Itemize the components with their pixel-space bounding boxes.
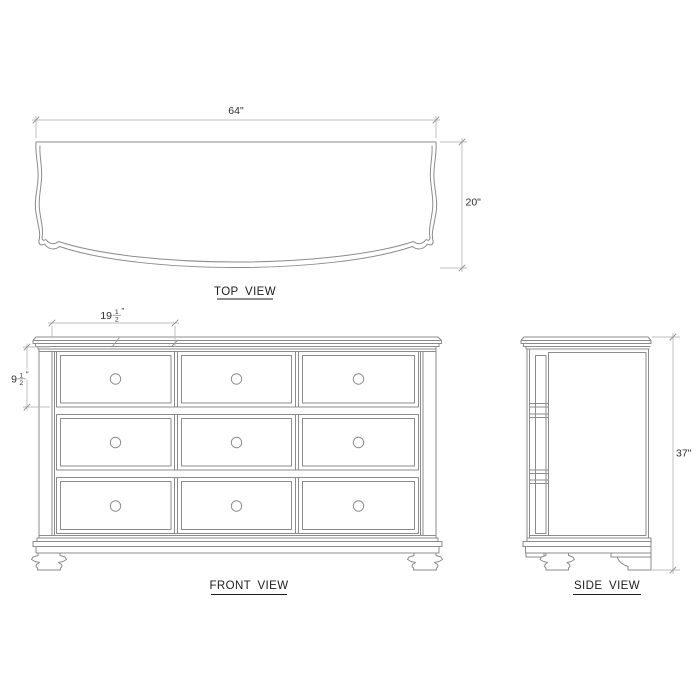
drawer-width-unit: " <box>122 307 125 316</box>
side-base-molding <box>527 538 651 542</box>
dimension-extension-lines <box>36 116 436 138</box>
drawer-width-numerator: 1 <box>115 309 119 316</box>
drawer-knob <box>110 437 120 447</box>
drawer-face <box>61 419 172 467</box>
front-left-foot <box>32 553 67 570</box>
drawer-face <box>182 419 292 467</box>
side-cornice <box>521 337 651 349</box>
side-back-foot-cap <box>611 553 651 557</box>
top-view-label: TOP VIEW <box>214 286 276 298</box>
drawer-width-whole: 19 <box>100 310 112 322</box>
front-case-frame <box>39 349 436 538</box>
drawer-height-denominator: 2 <box>19 380 23 387</box>
side-molding-return <box>526 553 544 557</box>
side-base-molding <box>526 547 652 554</box>
front-cornice <box>33 337 442 349</box>
drawer-height-unit: " <box>26 371 29 380</box>
front-view-label: FRONT VIEW <box>210 580 289 592</box>
drawer-face <box>182 482 292 530</box>
cornice-miter-tick <box>112 338 119 347</box>
side-base-molding <box>523 542 651 547</box>
drawer-knob <box>353 501 363 511</box>
dimension-tick <box>49 320 178 346</box>
front-right-foot <box>408 553 443 570</box>
front-base-molding <box>37 538 438 542</box>
drawing-sheet: 64" 20" TOP VIEW <box>0 0 700 700</box>
drawer-face <box>182 356 292 404</box>
front-view: 19 1 2 " 9 1 2 " FRONT VIEW <box>11 307 442 595</box>
side-case-frame <box>527 349 649 538</box>
side-height-dim-text: 37" <box>676 448 692 460</box>
dimension-top-depth: 20" <box>440 138 481 272</box>
side-front-foot <box>540 553 575 570</box>
dresser-technical-drawing: 64" 20" TOP VIEW <box>0 0 700 700</box>
drawer-height-whole: 9 <box>11 374 17 386</box>
drawer-face <box>303 356 415 404</box>
front-base-molding <box>36 547 439 554</box>
drawer-width-denominator: 2 <box>115 317 119 324</box>
drawer-knob <box>353 437 363 447</box>
side-view: 37" SIDE VIEW <box>521 333 692 595</box>
dimension-side-height: 37" <box>652 333 692 574</box>
drawer-knob <box>110 501 120 511</box>
top-outline-inner <box>39 146 433 262</box>
drawer-knob <box>353 374 363 384</box>
side-view-label: SIDE VIEW <box>574 580 640 592</box>
drawer-knob <box>231 437 241 447</box>
drawer-face <box>303 482 415 530</box>
drawer-face <box>303 419 415 467</box>
side-back-foot <box>611 553 651 570</box>
top-outline-outer <box>35 142 436 268</box>
top-depth-dim-text: 20" <box>466 197 482 209</box>
drawer-height-numerator: 1 <box>19 372 23 379</box>
top-width-dim-text: 64" <box>228 105 244 117</box>
drawer-knobs <box>110 374 363 511</box>
drawer-face <box>61 356 172 404</box>
top-view: 64" 20" TOP VIEW <box>32 105 481 299</box>
front-base-molding <box>33 542 442 547</box>
dimension-extension-lines <box>440 142 467 268</box>
drawer-knob <box>231 374 241 384</box>
drawer-knob <box>231 501 241 511</box>
dimension-drawer-height: 9 1 2 " <box>11 344 50 411</box>
drawer-knob <box>110 374 120 384</box>
drawer-face <box>61 482 172 530</box>
drawer-dividers <box>175 352 299 534</box>
dimension-top-width: 64" <box>32 105 440 138</box>
side-back-foot-body <box>617 557 651 570</box>
